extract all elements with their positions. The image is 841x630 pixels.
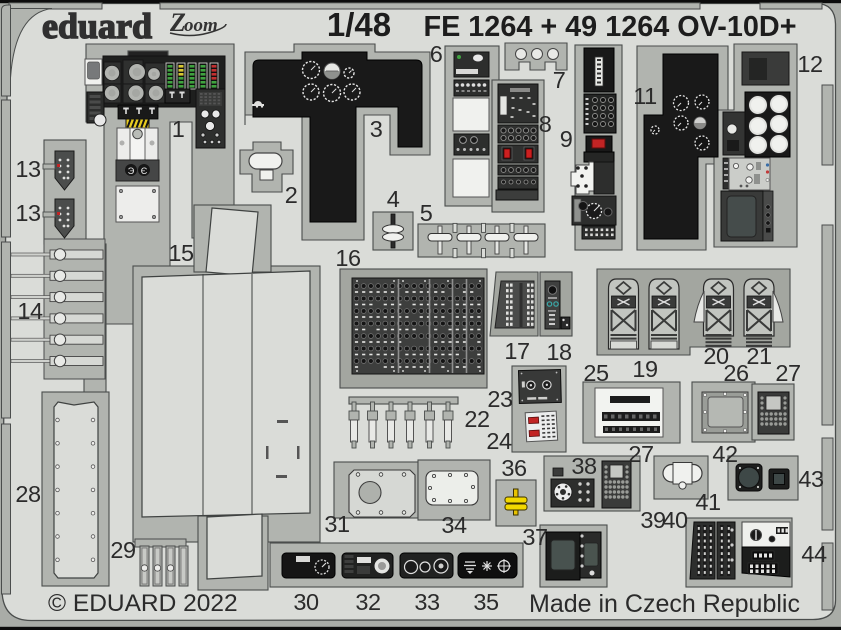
svg-text:38: 38 (571, 453, 597, 479)
svg-text:13: 13 (15, 200, 41, 226)
svg-text:24: 24 (486, 428, 512, 454)
svg-text:27: 27 (775, 360, 800, 386)
svg-text:43: 43 (798, 466, 824, 492)
svg-text:32: 32 (355, 589, 380, 615)
svg-text:5: 5 (420, 200, 433, 226)
svg-text:42: 42 (712, 441, 737, 467)
svg-text:33: 33 (414, 589, 440, 615)
svg-text:31: 31 (324, 511, 349, 537)
svg-text:13: 13 (15, 156, 41, 182)
svg-text:30: 30 (293, 589, 319, 615)
svg-text:21: 21 (746, 343, 771, 369)
svg-text:40: 40 (662, 507, 688, 533)
svg-text:eduard: eduard (42, 6, 152, 46)
svg-text:25: 25 (583, 360, 609, 386)
svg-text:23: 23 (487, 386, 513, 412)
svg-text:16: 16 (335, 245, 361, 271)
svg-text:3: 3 (370, 116, 383, 142)
svg-text:Made in Czech Republic: Made in Czech Republic (529, 590, 800, 618)
svg-text:35: 35 (473, 589, 499, 615)
svg-text:1/48: 1/48 (327, 6, 391, 43)
svg-text:Є: Є (141, 166, 148, 176)
svg-text:9: 9 (560, 126, 573, 152)
svg-text:oom: oom (184, 15, 218, 36)
svg-text:29: 29 (110, 537, 135, 563)
svg-text:34: 34 (441, 512, 467, 538)
svg-text:11: 11 (633, 83, 656, 109)
svg-text:2: 2 (285, 182, 298, 208)
svg-text:7: 7 (553, 67, 566, 93)
svg-text:© EDUARD 2022: © EDUARD 2022 (48, 590, 238, 617)
svg-text:26: 26 (723, 360, 749, 386)
svg-text:Э: Э (128, 166, 135, 176)
svg-text:27: 27 (628, 441, 653, 467)
svg-text:37: 37 (522, 524, 547, 550)
svg-text:41: 41 (695, 489, 720, 515)
svg-text:6: 6 (430, 41, 443, 67)
svg-text:FE 1264 + 49 1264 OV-10D+: FE 1264 + 49 1264 OV-10D+ (423, 11, 796, 43)
svg-text:1: 1 (172, 116, 185, 142)
svg-text:15: 15 (168, 240, 194, 266)
svg-text:19: 19 (632, 356, 657, 382)
svg-text:12: 12 (797, 51, 822, 77)
svg-text:4: 4 (387, 186, 400, 212)
svg-text:44: 44 (801, 541, 827, 567)
svg-text:17: 17 (504, 338, 529, 364)
svg-text:36: 36 (501, 455, 527, 481)
svg-text:28: 28 (15, 481, 41, 507)
svg-text:8: 8 (539, 111, 552, 137)
svg-text:14: 14 (17, 298, 43, 324)
svg-text:18: 18 (546, 339, 572, 365)
